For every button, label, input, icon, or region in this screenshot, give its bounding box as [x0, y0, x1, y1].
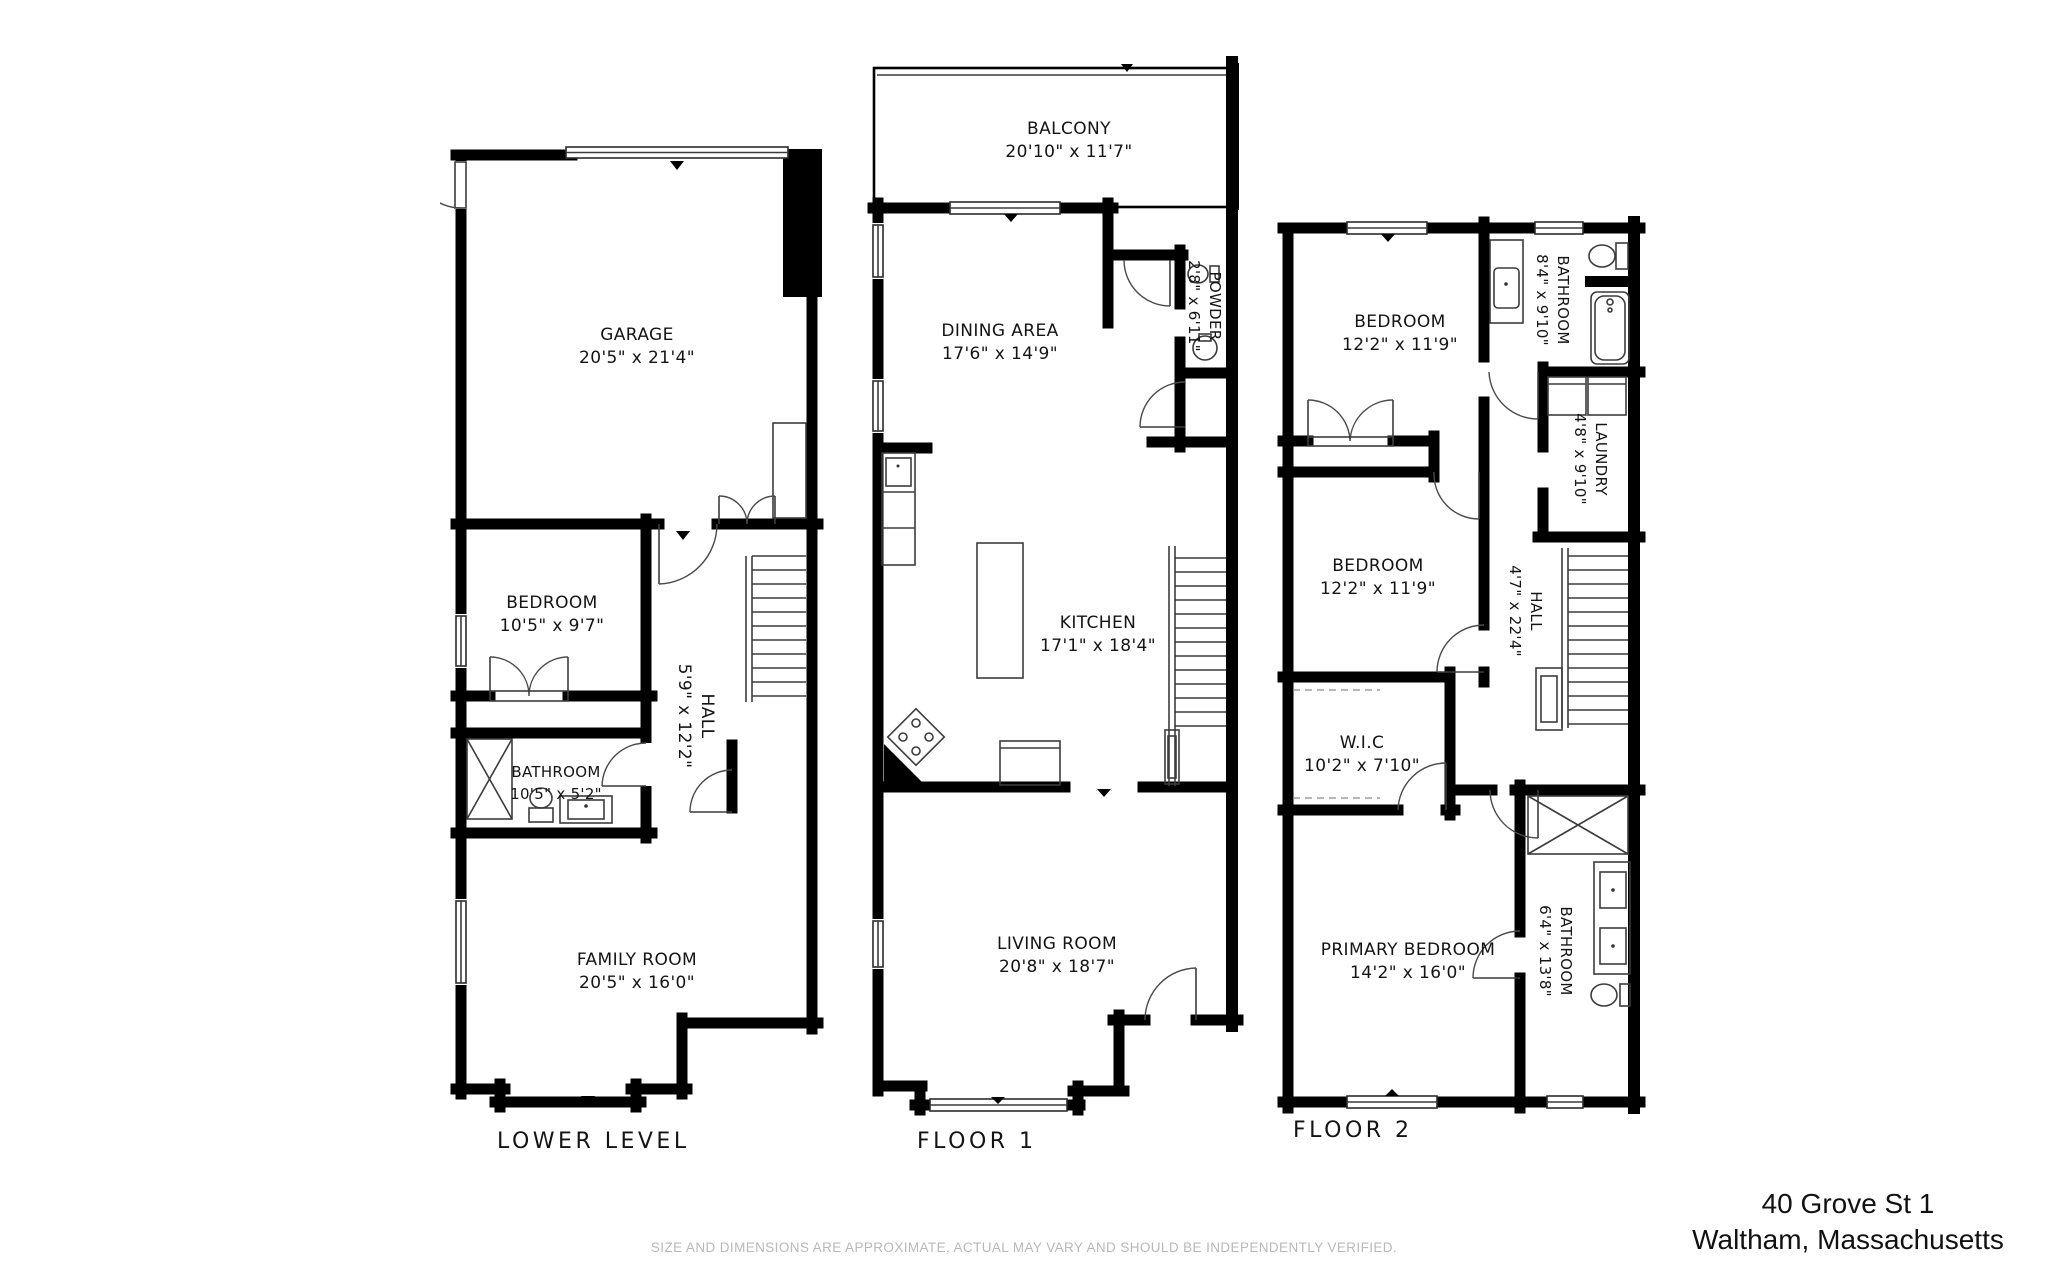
room-label-bathroom1-group: BATHROOM 8'4" x 9'10"	[1533, 254, 1572, 346]
disclaimer-text: SIZE AND DIMENSIONS ARE APPROXIMATE, ACT…	[0, 1240, 2048, 1255]
floor-title-floor-1: FLOOR 1	[917, 1129, 1037, 1154]
bathroom1-toilet	[1589, 243, 1628, 269]
room-dims-laundry: 4'8" x 9'10"	[1571, 413, 1589, 505]
bathroom1-door	[1489, 372, 1538, 419]
tick-marker	[676, 531, 690, 540]
room-label-hall2-group: HALL 4'7" x 22'4"	[1506, 565, 1545, 657]
garage-closet	[719, 423, 806, 524]
bedroom1-door	[1434, 472, 1479, 519]
floor-2-plan: BEDROOM 12'2" x 11'9" BATHROOM 8'4" x 9'…	[1270, 210, 1670, 1155]
room-dims-bedroom2: 12'2" x 11'9"	[1320, 579, 1436, 599]
tick-marker	[1381, 234, 1395, 242]
room-label-bedroom2: BEDROOM	[1332, 556, 1424, 576]
shower2	[1528, 796, 1628, 854]
room-label-bathroom1: BATHROOM	[1554, 255, 1572, 344]
stairs	[1562, 548, 1628, 728]
linen-closet	[1536, 668, 1562, 730]
kitchen-counter	[882, 453, 915, 565]
floor-title-lower-level: LOWER LEVEL	[497, 1129, 690, 1154]
room-dims-hall: 5'9" x 12'2"	[674, 664, 694, 769]
room-label-balcony: BALCONY	[1027, 119, 1111, 139]
room-label-bathroom2: BATHROOM	[1557, 906, 1575, 995]
room-label-laundry: LAUNDRY	[1592, 422, 1610, 496]
room-dims-bathroom2: 6'4" x 13'8"	[1536, 905, 1554, 997]
front-door	[1145, 968, 1196, 1020]
room-label-primary-bedroom: PRIMARY BEDROOM	[1321, 940, 1496, 960]
room-dims-bathroom: 10'5" x 5'2"	[510, 785, 602, 803]
shower	[467, 739, 512, 819]
tick-marker	[1004, 214, 1018, 222]
room-label-family-room: FAMILY ROOM	[577, 950, 697, 970]
room-label-powder: POWDER	[1206, 272, 1224, 341]
bedroom-closet-doors	[490, 657, 568, 701]
washer-dryer	[1548, 377, 1626, 415]
room-label-hall: HALL	[697, 694, 717, 739]
kitchen-lower-counter	[1000, 741, 1060, 785]
dining-window	[950, 202, 1060, 214]
bathtub	[1591, 292, 1629, 364]
room-dims-primary-bedroom: 14'2" x 16'0"	[1350, 963, 1466, 983]
lower-level-plan: GARAGE 20'5" x 21'4" BEDROOM 10'5" x 9'7…	[440, 130, 840, 1160]
room-label-bathroom2-group: BATHROOM 6'4" x 13'8"	[1536, 905, 1575, 997]
stairs	[746, 556, 806, 702]
floor-title-floor-2: FLOOR 2	[1293, 1118, 1413, 1143]
room-dims-bedroom: 10'5" x 9'7"	[500, 616, 605, 636]
room-dims-powder: 2'8" x 6'11"	[1185, 260, 1203, 352]
bedroom-window	[453, 614, 469, 668]
garage-door	[566, 147, 788, 158]
bedroom2-door	[1437, 625, 1484, 672]
room-label-bedroom1: BEDROOM	[1354, 312, 1446, 332]
room-dims-wic: 10'2" x 7'10"	[1304, 756, 1420, 776]
room-dims-bathroom1: 8'4" x 9'10"	[1533, 254, 1551, 346]
room-label-kitchen: KITCHEN	[1060, 613, 1136, 633]
room-label-bedroom: BEDROOM	[506, 593, 598, 613]
family-room-window	[453, 899, 469, 985]
room-dims-dining-area: 17'6" x 14'9"	[942, 344, 1058, 364]
kitchen-island	[977, 543, 1023, 678]
room-dims-living-room: 20'8" x 18'7"	[999, 957, 1115, 977]
floor-1-plan: BALCONY 20'10" x 11'7" DINING AREA 17'6"…	[860, 40, 1260, 1160]
double-vanity	[1594, 862, 1630, 974]
bathroom-door	[602, 743, 653, 786]
room-dims-kitchen: 17'1" x 18'4"	[1040, 636, 1156, 656]
floorplan-canvas: GARAGE 20'5" x 21'4" BEDROOM 10'5" x 9'7…	[0, 0, 2048, 1279]
room-label-living-room: LIVING ROOM	[997, 934, 1117, 954]
room-label-bathroom: BATHROOM	[511, 763, 600, 781]
room-dims-hall2: 4'7" x 22'4"	[1506, 565, 1524, 657]
kitchen-stove	[884, 709, 944, 792]
room-label-laundry-group: LAUNDRY 4'8" x 9'10"	[1571, 413, 1610, 505]
bedroom1-closet-doors	[1308, 400, 1393, 446]
room-dims-family-room: 20'5" x 16'0"	[579, 973, 695, 993]
room-label-hall2: HALL	[1527, 591, 1545, 631]
room-label-hall-group: HALL 5'9" x 12'2"	[674, 664, 717, 769]
chimney-block	[783, 149, 822, 297]
room-label-dining-area: DINING AREA	[941, 321, 1058, 341]
tick-marker	[1097, 789, 1111, 797]
bathroom1-vanity	[1490, 240, 1523, 323]
address-line-1: 40 Grove St 1	[1648, 1186, 2048, 1222]
tub-halfwall	[1585, 276, 1634, 287]
room-label-garage: GARAGE	[600, 325, 674, 345]
family-room-door	[690, 770, 732, 812]
toilet2	[1591, 984, 1630, 1006]
tick-marker	[1385, 1089, 1399, 1096]
stairs	[1165, 546, 1226, 786]
entry-door	[440, 161, 470, 209]
room-label-wic: W.I.C	[1340, 733, 1385, 753]
tick-marker	[670, 161, 684, 170]
room-dims-garage: 20'5" x 21'4"	[579, 348, 695, 368]
room-dims-bedroom1: 12'2" x 11'9"	[1342, 335, 1458, 355]
balcony-door	[1124, 260, 1170, 306]
room-dims-balcony: 20'10" x 11'7"	[1005, 142, 1132, 162]
room-label-powder-group: POWDER 2'8" x 6'11"	[1185, 260, 1224, 352]
